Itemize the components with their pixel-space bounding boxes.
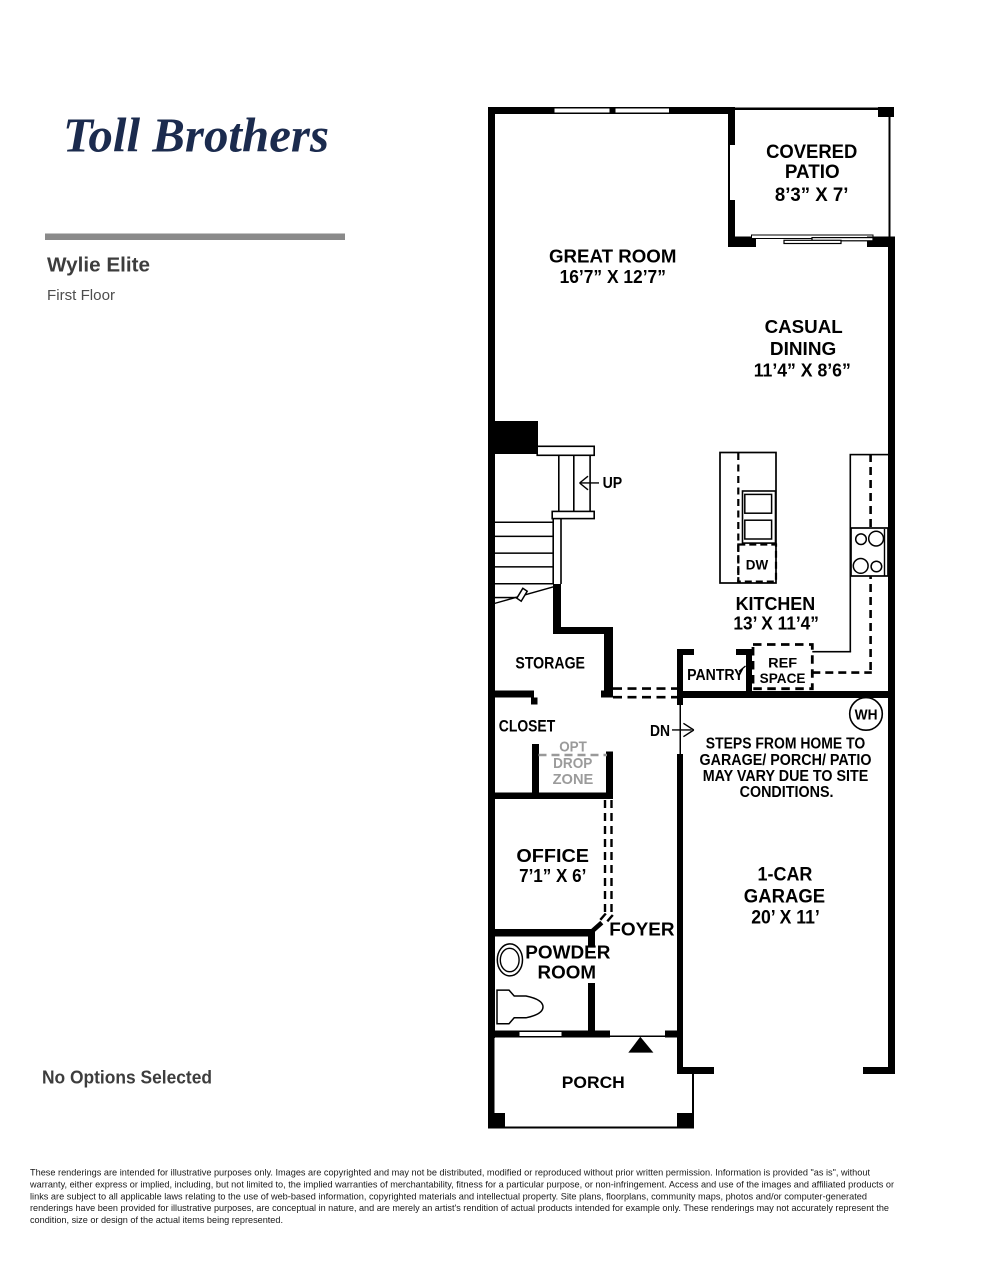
- svg-text:renderings have been provided: renderings have been provided for illust…: [30, 1203, 889, 1213]
- svg-text:GREAT ROOM: GREAT ROOM: [549, 247, 676, 267]
- svg-text:SPACE: SPACE: [760, 671, 806, 686]
- svg-text:These renderings are intended: These renderings are intended for illust…: [30, 1168, 870, 1178]
- svg-text:13’ X 11’4”: 13’ X 11’4”: [733, 613, 819, 634]
- svg-text:WH: WH: [855, 707, 878, 724]
- svg-text:FOYER: FOYER: [609, 918, 674, 939]
- svg-text:11’4” X 8’6”: 11’4” X 8’6”: [754, 359, 851, 380]
- svg-text:ZONE: ZONE: [553, 771, 594, 788]
- svg-text:OPT: OPT: [559, 739, 587, 756]
- svg-text:GARAGE/ PORCH/ PATIO: GARAGE/ PORCH/ PATIO: [700, 752, 872, 769]
- svg-text:OFFICE: OFFICE: [516, 845, 589, 866]
- svg-text:STORAGE: STORAGE: [515, 654, 585, 673]
- svg-text:CLOSET: CLOSET: [499, 717, 556, 736]
- svg-text:DN: DN: [650, 723, 670, 740]
- svg-text:KITCHEN: KITCHEN: [736, 593, 816, 614]
- svg-text:condition, size or design of t: condition, size or design of the actual …: [30, 1215, 283, 1225]
- svg-text:PANTRY: PANTRY: [687, 667, 744, 684]
- svg-text:REF: REF: [768, 656, 797, 671]
- svg-text:DW: DW: [746, 557, 769, 573]
- svg-text:MAY VARY DUE TO SITE: MAY VARY DUE TO SITE: [703, 768, 869, 785]
- svg-text:ROOM: ROOM: [538, 962, 597, 983]
- svg-text:1-CAR: 1-CAR: [758, 864, 813, 885]
- svg-text:First Floor: First Floor: [47, 287, 115, 304]
- svg-text:links are subject to all appli: links are subject to all applicable laws…: [30, 1191, 867, 1201]
- svg-text:warranty, either express or im: warranty, either express or implied, inc…: [29, 1179, 894, 1189]
- svg-text:PORCH: PORCH: [562, 1073, 625, 1092]
- svg-text:7’1” X 6’: 7’1” X 6’: [519, 865, 586, 886]
- svg-text:COVERED: COVERED: [766, 141, 857, 163]
- svg-text:16’7” X 12’7”: 16’7” X 12’7”: [560, 267, 666, 287]
- svg-text:8’3” X 7’: 8’3” X 7’: [775, 184, 849, 206]
- svg-text:UP: UP: [603, 475, 623, 492]
- svg-text:DINING: DINING: [770, 338, 836, 359]
- svg-text:DROP: DROP: [553, 755, 592, 772]
- svg-text:CONDITIONS.: CONDITIONS.: [740, 784, 834, 801]
- svg-text:GARAGE: GARAGE: [744, 887, 825, 908]
- svg-text:Wylie Elite: Wylie Elite: [47, 255, 150, 277]
- svg-text:CASUAL: CASUAL: [765, 316, 843, 337]
- svg-text:STEPS FROM HOME TO: STEPS FROM HOME TO: [706, 736, 865, 753]
- svg-text:No Options Selected: No Options Selected: [42, 1068, 212, 1088]
- svg-text:POWDER: POWDER: [525, 942, 610, 963]
- svg-text:Toll Brothers: Toll Brothers: [63, 108, 329, 163]
- svg-text:20’ X 11’: 20’ X 11’: [751, 908, 820, 929]
- svg-text:PATIO: PATIO: [785, 161, 840, 183]
